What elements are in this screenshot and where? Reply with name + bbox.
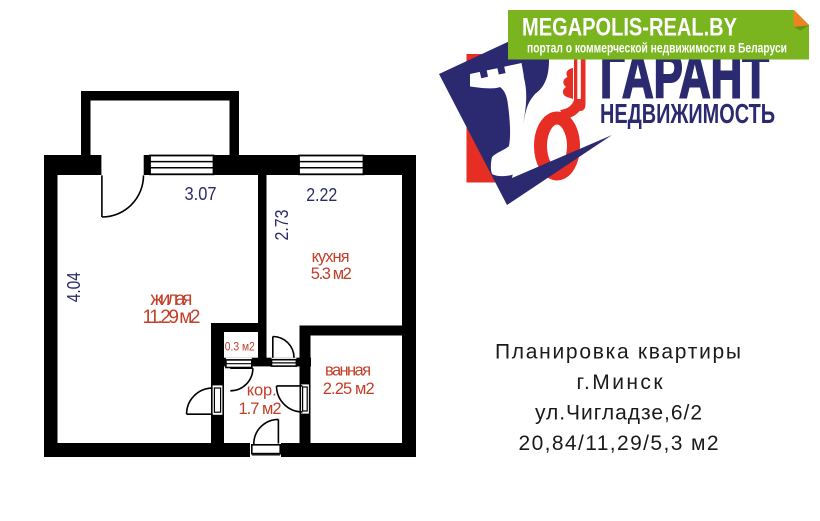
svg-text:НЕДВИЖИМОСТЬ: НЕДВИЖИМОСТЬ bbox=[600, 98, 775, 129]
svg-text:ванная: ванная bbox=[325, 362, 371, 380]
svg-text:5.3 м2: 5.3 м2 bbox=[311, 265, 352, 283]
svg-text:20,84/11,29/5,3 м2: 20,84/11,29/5,3 м2 bbox=[519, 432, 719, 455]
svg-text:2.22: 2.22 bbox=[306, 184, 337, 205]
svg-text:кор.: кор. bbox=[247, 382, 277, 400]
svg-text:ул.Чигладзе,6/2: ул.Чигладзе,6/2 bbox=[535, 402, 702, 425]
svg-text:2.25 м2: 2.25 м2 bbox=[323, 380, 375, 398]
svg-text:кухня: кухня bbox=[312, 248, 350, 266]
svg-text:3.07: 3.07 bbox=[185, 183, 217, 204]
svg-text:Планировка квартиры: Планировка квартиры bbox=[495, 341, 741, 364]
svg-text:11.29 м2: 11.29 м2 bbox=[143, 307, 201, 328]
svg-text:портал о коммерческой недвижим: портал о коммерческой недвижимости в Бел… bbox=[527, 41, 787, 56]
svg-text:г.Минск: г.Минск bbox=[577, 371, 664, 394]
svg-text:2.73: 2.73 bbox=[271, 210, 292, 241]
svg-text:MEGAPOLIS-REAL.BY: MEGAPOLIS-REAL.BY bbox=[522, 14, 737, 42]
svg-text:0.3 м2: 0.3 м2 bbox=[225, 340, 255, 354]
svg-text:4.04: 4.04 bbox=[63, 272, 84, 302]
svg-text:1.7 м2: 1.7 м2 bbox=[239, 400, 282, 418]
